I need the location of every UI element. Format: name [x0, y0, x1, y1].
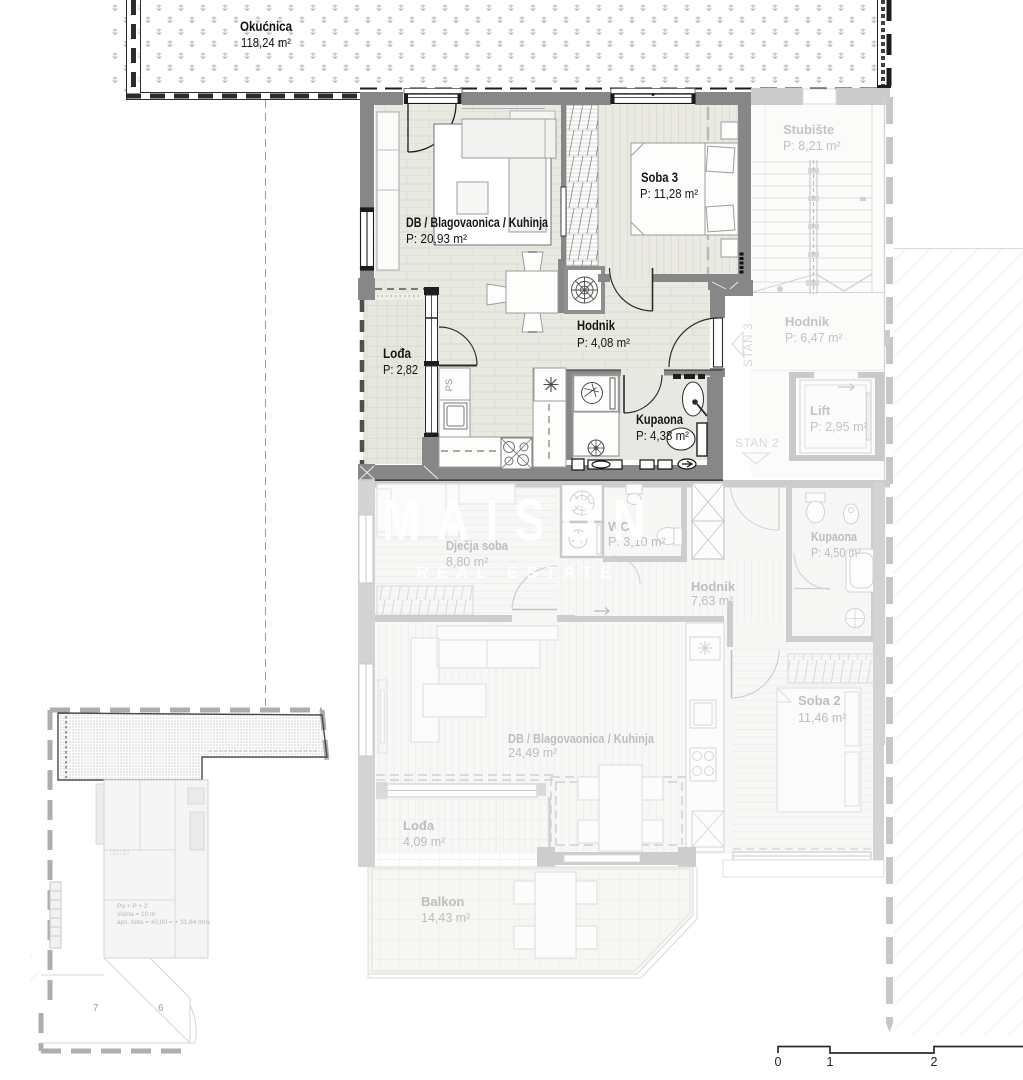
- svg-text:STAN 2: STAN 2: [735, 436, 779, 450]
- svg-text:Hodnik: Hodnik: [577, 318, 615, 333]
- svg-text:118,24 m²: 118,24 m²: [241, 35, 292, 50]
- svg-text:P: 4,08 m²: P: 4,08 m²: [577, 335, 631, 350]
- svg-text:visina = 10 m: visina = 10 m: [117, 911, 155, 918]
- svg-text:Lođa: Lođa: [403, 818, 435, 833]
- svg-text:DB / Blagovaonica / Kuhinja: DB / Blagovaonica / Kuhinja: [508, 731, 655, 746]
- svg-text:Soba 3: Soba 3: [641, 170, 678, 185]
- svg-text:P: 2,95 m²: P: 2,95 m²: [810, 420, 868, 434]
- svg-text:Hodnik: Hodnik: [785, 314, 830, 329]
- svg-text:Kupaona: Kupaona: [811, 529, 858, 544]
- svg-text:P: 20,93 m²: P: 20,93 m²: [406, 231, 468, 246]
- svg-text:PS: PS: [444, 379, 455, 392]
- svg-text:Lift: Lift: [810, 403, 831, 418]
- svg-text:Hodnik: Hodnik: [691, 579, 736, 594]
- svg-text:2: 2: [931, 1055, 938, 1069]
- svg-text:□□ □□: □□ □□: [110, 850, 130, 857]
- svg-text:Kupaona: Kupaona: [636, 412, 683, 427]
- svg-text:P: 11,28 m²: P: 11,28 m²: [640, 186, 699, 201]
- svg-text:P: 4,38 m²: P: 4,38 m²: [636, 428, 690, 443]
- svg-text:14,43 m²: 14,43 m²: [421, 911, 470, 925]
- svg-text:P: 6,47 m²: P: 6,47 m²: [785, 331, 843, 345]
- svg-text:7: 7: [93, 1003, 99, 1014]
- svg-text:P: 2,82: P: 2,82: [383, 362, 418, 377]
- svg-text:Stubište: Stubište: [783, 122, 834, 137]
- svg-text:0: 0: [775, 1055, 782, 1069]
- svg-text:Lođa: Lođa: [383, 346, 411, 361]
- svg-text:4,09 m²: 4,09 m²: [403, 835, 445, 849]
- svg-text:REAL ESTATE: REAL ESTATE: [416, 563, 619, 582]
- svg-text:DB / Blagovaonica / Kuhinja: DB / Blagovaonica / Kuhinja: [406, 215, 548, 230]
- svg-text:24,49 m²: 24,49 m²: [508, 746, 557, 760]
- svg-text:Balkon: Balkon: [421, 894, 464, 909]
- svg-text:P: 4,50 m²: P: 4,50 m²: [811, 546, 861, 560]
- svg-text:11,46 m²: 11,46 m²: [798, 711, 846, 725]
- svg-text:Okućnica: Okućnica: [240, 19, 292, 34]
- svg-text:MAISON: MAISON: [382, 489, 661, 554]
- svg-text:Po + P + 2: Po + P + 2: [117, 903, 148, 910]
- svg-text:6: 6: [158, 1003, 164, 1014]
- svg-text:1: 1: [827, 1055, 834, 1069]
- svg-text:Soba 2: Soba 2: [798, 693, 841, 708]
- svg-text:aps. kota = ±0,00 = + 31,84 mn: aps. kota = ±0,00 = + 31,84 mnv: [117, 919, 211, 926]
- svg-text:P: 8,21 m²: P: 8,21 m²: [783, 139, 841, 153]
